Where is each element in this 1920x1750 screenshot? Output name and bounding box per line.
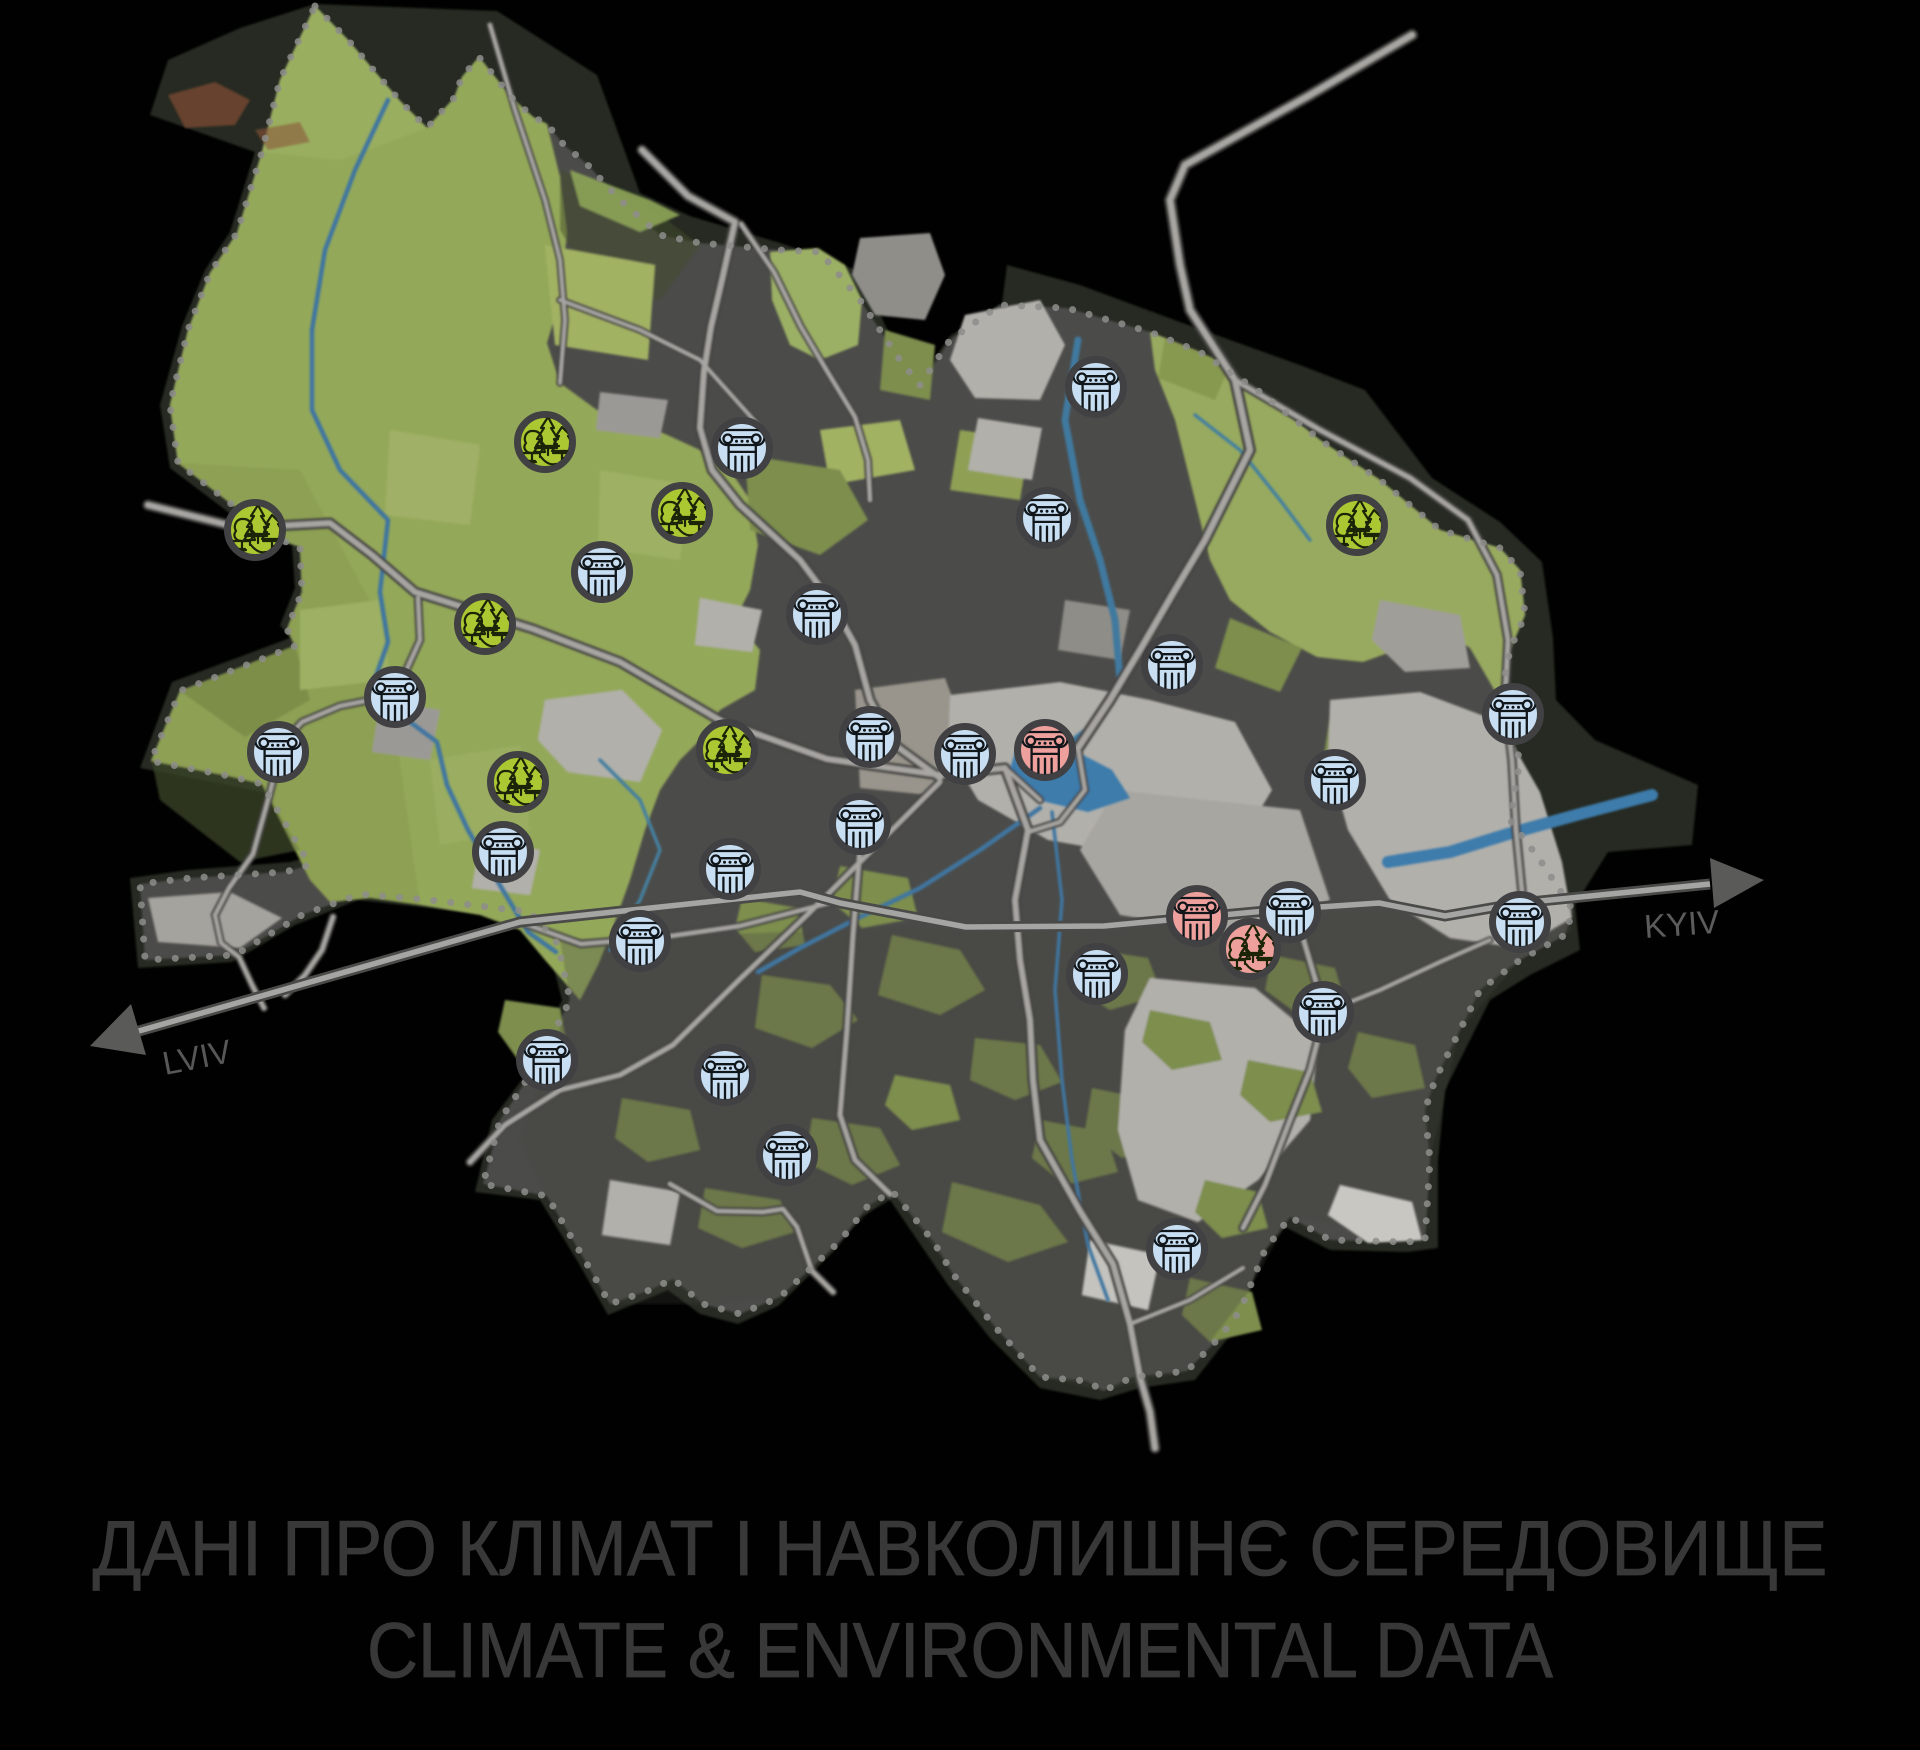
svg-text:CLIMATE & ENVIRONMENTAL DATA: CLIMATE & ENVIRONMENTAL DATA <box>367 1606 1553 1694</box>
svg-text:ДАНІ ПРО КЛІМАТ І НАВКОЛИШНЄ С: ДАНІ ПРО КЛІМАТ І НАВКОЛИШНЄ СЕРЕДОВИЩЕ <box>93 1504 1828 1592</box>
svg-text:KYIV: KYIV <box>1643 903 1721 945</box>
